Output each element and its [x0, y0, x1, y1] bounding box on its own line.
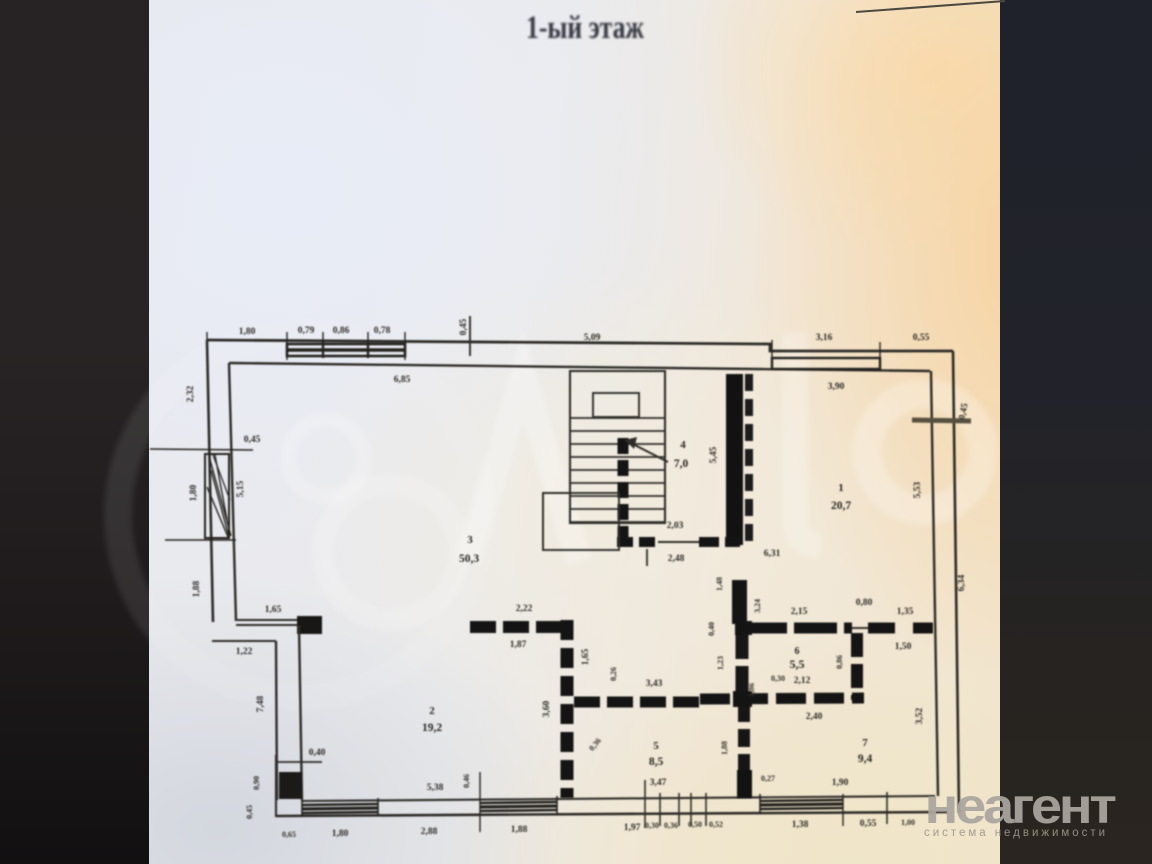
- svg-text:1,65: 1,65: [581, 648, 591, 665]
- svg-text:2,88: 2,88: [421, 827, 438, 837]
- svg-text:1,00: 1,00: [901, 818, 915, 827]
- svg-text:5,5: 5,5: [790, 657, 805, 671]
- svg-text:1,38: 1,38: [792, 820, 809, 830]
- svg-text:20,7: 20,7: [831, 500, 851, 512]
- svg-text:6,34: 6,34: [957, 574, 967, 591]
- svg-text:0,52: 0,52: [709, 820, 723, 829]
- svg-text:19,2: 19,2: [422, 722, 442, 734]
- svg-text:1,88: 1,88: [511, 825, 528, 835]
- svg-text:5: 5: [653, 740, 659, 752]
- svg-text:2,03: 2,03: [667, 521, 684, 531]
- svg-text:5,09: 5,09: [584, 333, 601, 343]
- svg-text:5,15: 5,15: [236, 480, 246, 497]
- svg-text:1,48: 1,48: [715, 577, 724, 591]
- svg-text:9,4: 9,4: [858, 753, 873, 765]
- svg-text:1,90: 1,90: [832, 778, 849, 788]
- svg-text:7: 7: [862, 737, 868, 749]
- svg-text:7,48: 7,48: [256, 695, 266, 712]
- svg-text:3,16: 3,16: [816, 333, 833, 343]
- svg-text:0,30: 0,30: [771, 674, 785, 683]
- svg-text:1,87: 1,87: [510, 640, 527, 650]
- svg-text:1,35: 1,35: [897, 607, 914, 617]
- svg-text:2,15: 2,15: [791, 607, 808, 617]
- svg-text:0,45: 0,45: [245, 805, 254, 819]
- svg-text:система недвижимости: система недвижимости: [924, 827, 1108, 839]
- svg-text:8,5: 8,5: [649, 756, 664, 768]
- svg-text:1: 1: [838, 482, 844, 494]
- svg-text:0,40: 0,40: [309, 748, 326, 758]
- svg-text:0,86: 0,86: [835, 655, 844, 669]
- svg-text:50,3: 50,3: [459, 553, 479, 565]
- svg-text:1,65: 1,65: [265, 605, 282, 615]
- svg-text:2,32: 2,32: [186, 385, 196, 402]
- svg-text:0,27: 0,27: [761, 774, 775, 783]
- svg-text:0,65: 0,65: [282, 830, 296, 839]
- svg-text:2,12: 2,12: [794, 676, 811, 686]
- svg-text:0,86: 0,86: [333, 326, 350, 336]
- svg-text:1,80: 1,80: [239, 327, 256, 337]
- svg-text:3: 3: [467, 534, 473, 546]
- svg-text:2: 2: [429, 705, 435, 717]
- svg-text:3,47: 3,47: [650, 778, 667, 788]
- svg-text:0,80: 0,80: [856, 598, 873, 608]
- svg-text:0,30: 0,30: [645, 821, 659, 830]
- svg-text:1,97: 1,97: [624, 823, 641, 833]
- svg-text:2,48: 2,48: [668, 554, 685, 564]
- svg-text:0,90: 0,90: [252, 776, 261, 790]
- svg-text:0,50: 0,50: [688, 820, 702, 829]
- svg-text:1,88: 1,88: [720, 741, 729, 755]
- svg-text:0,36: 0,36: [587, 736, 603, 753]
- svg-text:6,31: 6,31: [764, 549, 781, 559]
- svg-text:0,55: 0,55: [913, 333, 930, 343]
- svg-text:1,80: 1,80: [189, 484, 199, 501]
- svg-text:3,43: 3,43: [646, 679, 663, 689]
- svg-text:0,36: 0,36: [664, 821, 678, 830]
- svg-text:1,88: 1,88: [192, 580, 202, 597]
- svg-text:0,45: 0,45: [459, 318, 469, 335]
- svg-text:1,86: 1,86: [747, 683, 756, 697]
- svg-text:1-ый этаж: 1-ый этаж: [526, 10, 644, 46]
- svg-text:1,50: 1,50: [895, 642, 912, 652]
- svg-text:2,40: 2,40: [806, 712, 823, 722]
- svg-text:неагент: неагент: [925, 778, 1117, 834]
- svg-text:0,45: 0,45: [244, 435, 261, 445]
- svg-text:6,85: 6,85: [394, 375, 411, 385]
- svg-text:2,22: 2,22: [516, 604, 533, 614]
- svg-text:0,55: 0,55: [860, 819, 877, 829]
- svg-text:1,22: 1,22: [236, 647, 253, 657]
- svg-text:1,23: 1,23: [716, 656, 725, 670]
- svg-text:1,80: 1,80: [332, 829, 349, 839]
- svg-text:4: 4: [680, 439, 686, 451]
- svg-text:5,38: 5,38: [427, 783, 444, 793]
- svg-text:3,52: 3,52: [915, 707, 925, 724]
- svg-text:5,45: 5,45: [709, 446, 719, 463]
- svg-text:3,24: 3,24: [753, 599, 762, 613]
- svg-text:0,78: 0,78: [374, 326, 391, 336]
- svg-text:0,46: 0,46: [462, 774, 471, 788]
- svg-text:3,60: 3,60: [542, 700, 552, 717]
- svg-text:6: 6: [795, 646, 800, 657]
- svg-text:0,79: 0,79: [298, 326, 315, 336]
- svg-text:3,90: 3,90: [828, 382, 845, 392]
- svg-text:5,53: 5,53: [913, 481, 923, 498]
- svg-text:0,26: 0,26: [609, 667, 618, 681]
- svg-text:7,0: 7,0: [674, 458, 689, 470]
- svg-text:0,40: 0,40: [707, 622, 716, 636]
